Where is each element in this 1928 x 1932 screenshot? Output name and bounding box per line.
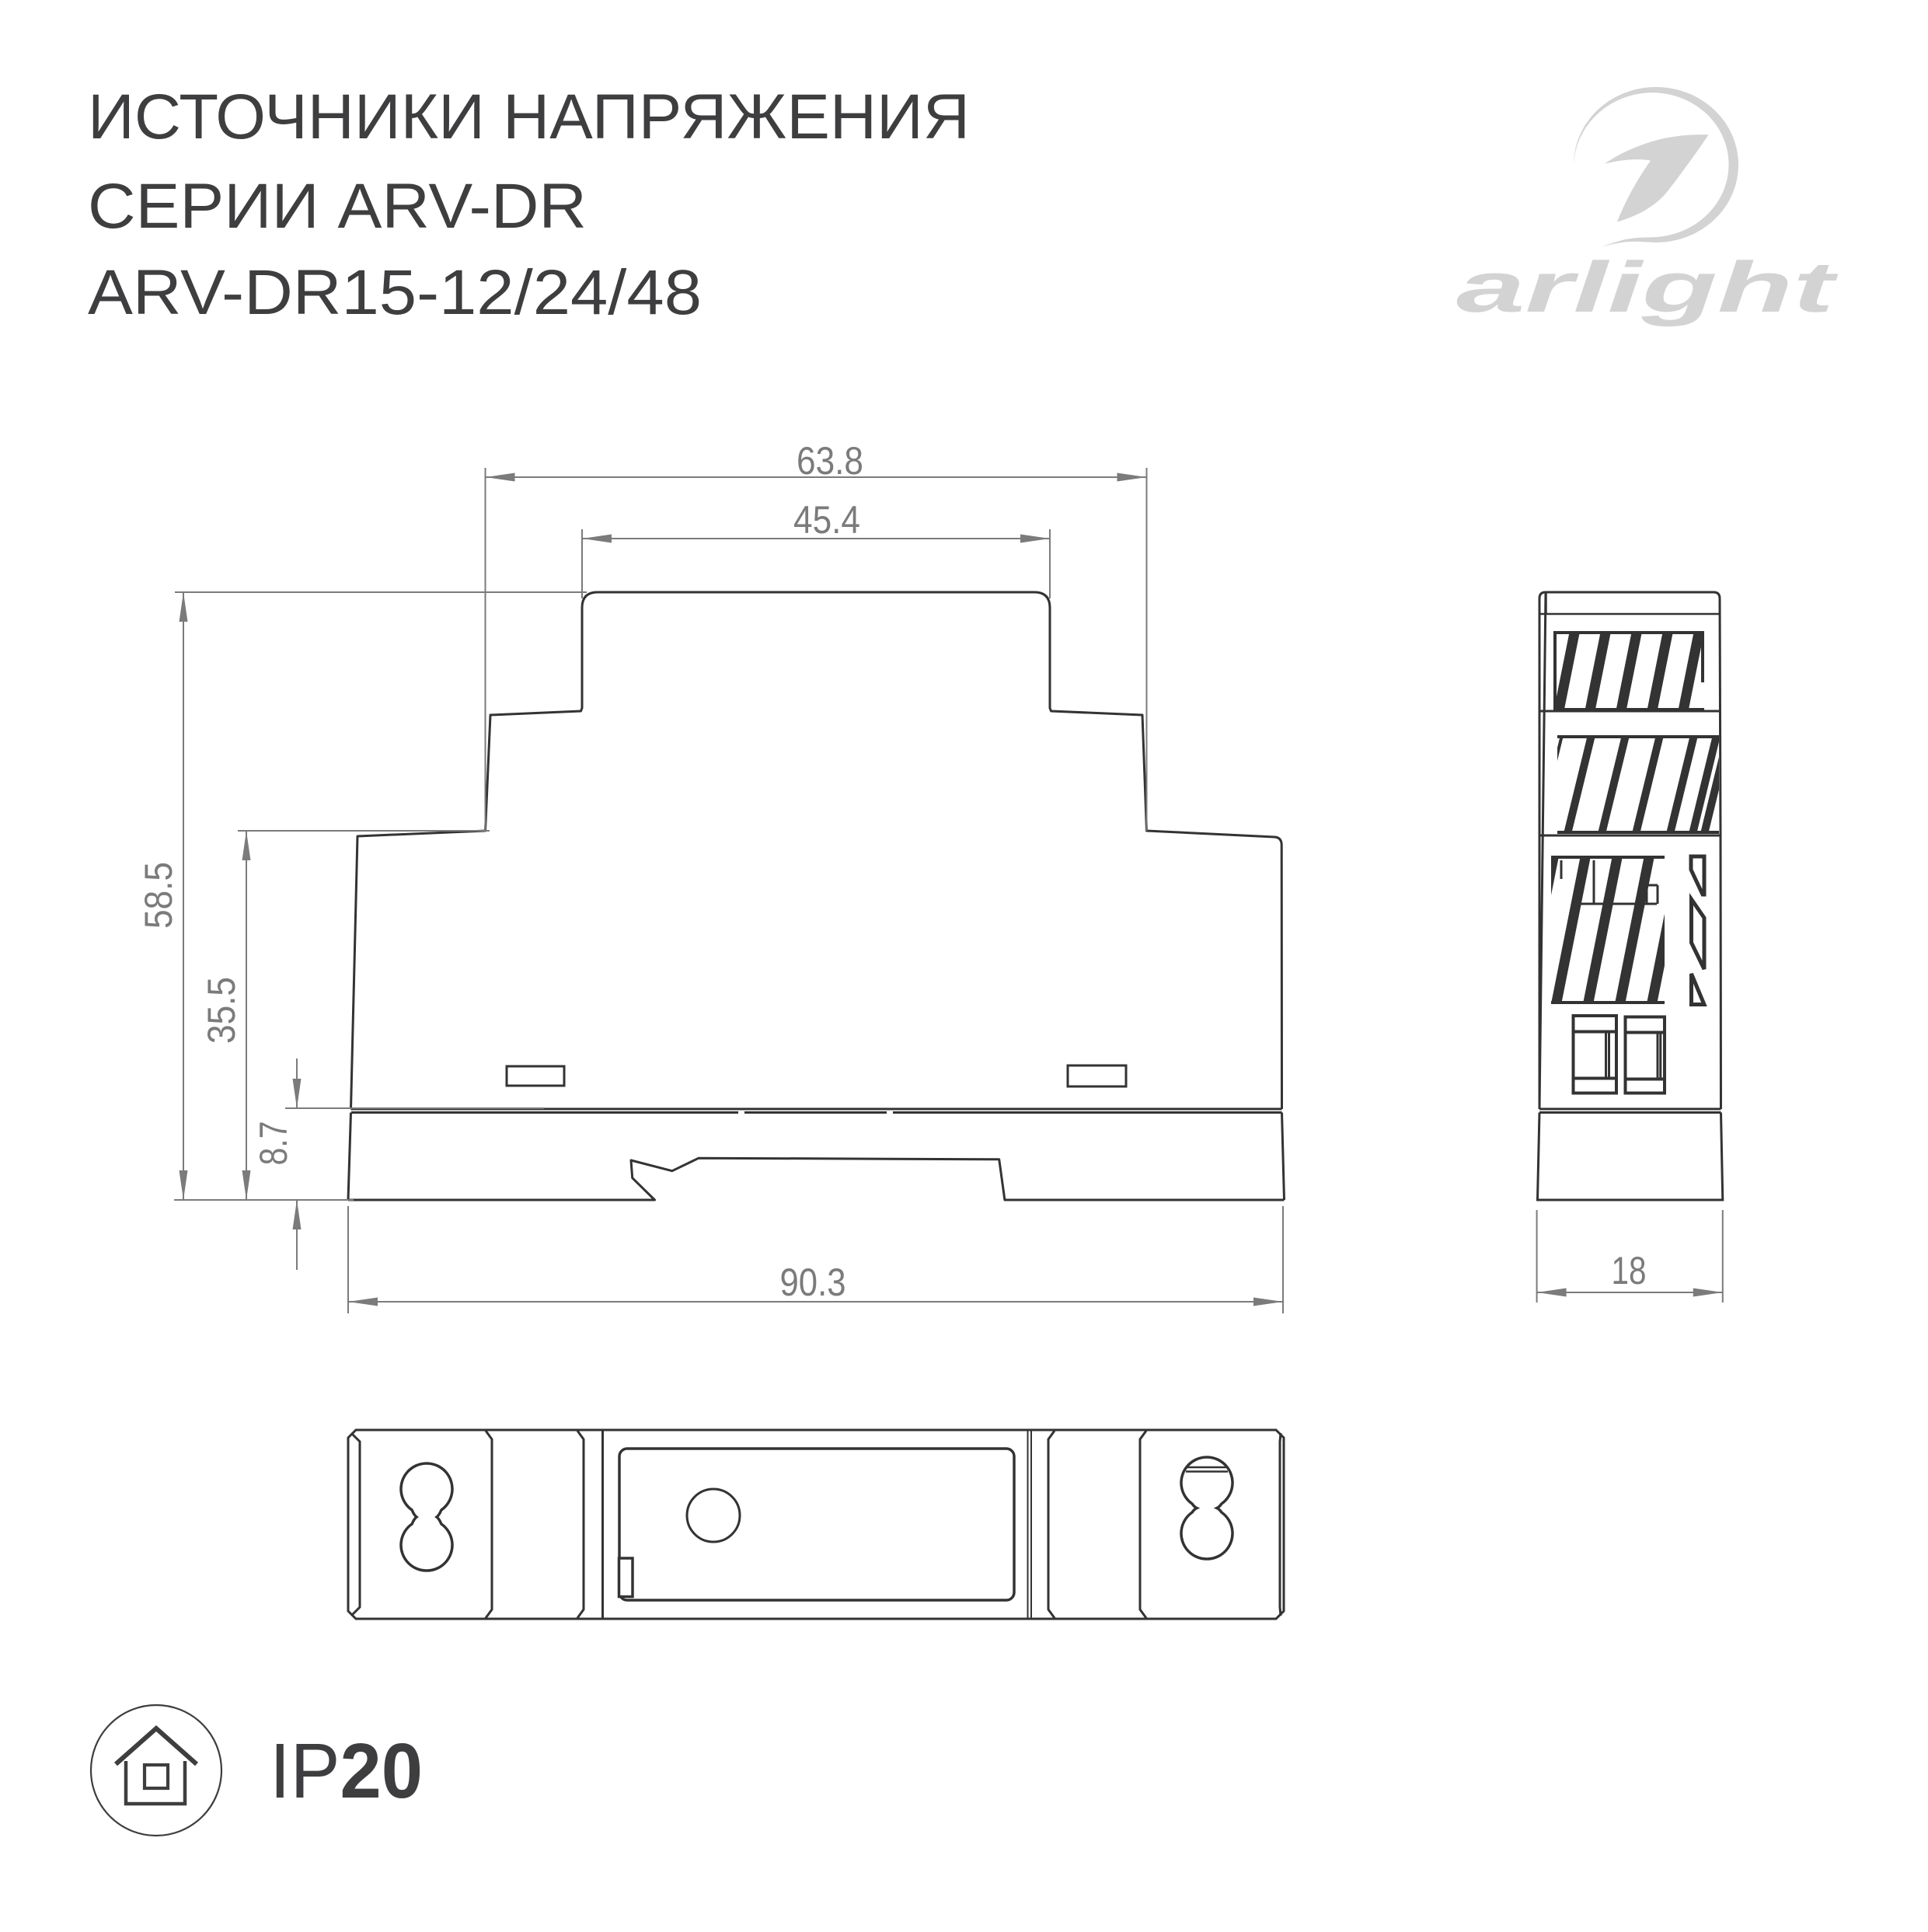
svg-text:45.4: 45.4	[793, 498, 860, 542]
svg-text:IP20: IP20	[270, 1728, 423, 1815]
svg-text:35.5: 35.5	[200, 977, 243, 1044]
svg-text:ARV-DR15-12/24/48: ARV-DR15-12/24/48	[88, 257, 702, 328]
svg-text:arlight: arlight	[1456, 248, 1839, 327]
svg-text:ИСТОЧНИКИ НАПРЯЖЕНИЯ: ИСТОЧНИКИ НАПРЯЖЕНИЯ	[88, 82, 970, 152]
svg-text:90.3: 90.3	[780, 1261, 846, 1304]
svg-text:8.7: 8.7	[252, 1121, 295, 1166]
svg-text:63.8: 63.8	[797, 439, 863, 483]
svg-text:СЕРИИ ARV-DR: СЕРИИ ARV-DR	[88, 171, 587, 242]
svg-text:18: 18	[1612, 1249, 1647, 1292]
svg-text:58.5: 58.5	[137, 862, 180, 929]
